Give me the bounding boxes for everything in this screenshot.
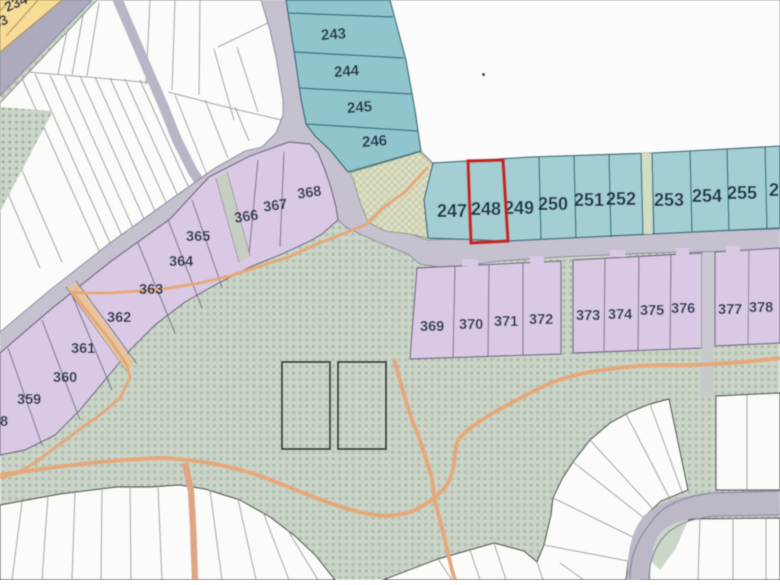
svg-text:249: 249 xyxy=(504,198,534,218)
svg-text:246: 246 xyxy=(361,132,387,151)
svg-text:245: 245 xyxy=(346,98,372,117)
svg-text:253: 253 xyxy=(654,190,684,210)
svg-text:366: 366 xyxy=(233,207,259,226)
svg-text:359: 359 xyxy=(17,392,41,408)
svg-text:370: 370 xyxy=(459,317,483,333)
svg-text:362: 362 xyxy=(107,310,131,326)
svg-text:243: 243 xyxy=(320,25,346,44)
svg-text:361: 361 xyxy=(71,341,95,357)
svg-text:360: 360 xyxy=(53,370,77,386)
svg-text:2: 2 xyxy=(769,180,779,200)
svg-text:371: 371 xyxy=(494,314,518,330)
svg-text:244: 244 xyxy=(333,62,360,81)
svg-text:248: 248 xyxy=(471,199,501,219)
svg-text:364: 364 xyxy=(169,254,193,270)
svg-text:376: 376 xyxy=(671,301,695,317)
svg-text:252: 252 xyxy=(606,189,636,209)
svg-text:247: 247 xyxy=(437,201,467,221)
svg-text:373: 373 xyxy=(576,308,600,324)
svg-text:365: 365 xyxy=(186,229,210,245)
svg-text:254: 254 xyxy=(692,186,722,206)
svg-text:255: 255 xyxy=(727,183,757,203)
svg-text:367: 367 xyxy=(262,196,288,215)
svg-text:8: 8 xyxy=(0,414,8,430)
svg-text:250: 250 xyxy=(538,194,568,214)
svg-text:363: 363 xyxy=(139,282,163,298)
svg-text:375: 375 xyxy=(640,303,664,319)
svg-text:368: 368 xyxy=(296,183,322,202)
svg-text:372: 372 xyxy=(529,312,553,328)
svg-text:251: 251 xyxy=(574,190,604,210)
svg-text:378: 378 xyxy=(749,300,773,316)
svg-text:377: 377 xyxy=(718,302,742,318)
svg-text:374: 374 xyxy=(608,307,632,323)
svg-text:369: 369 xyxy=(420,319,444,335)
